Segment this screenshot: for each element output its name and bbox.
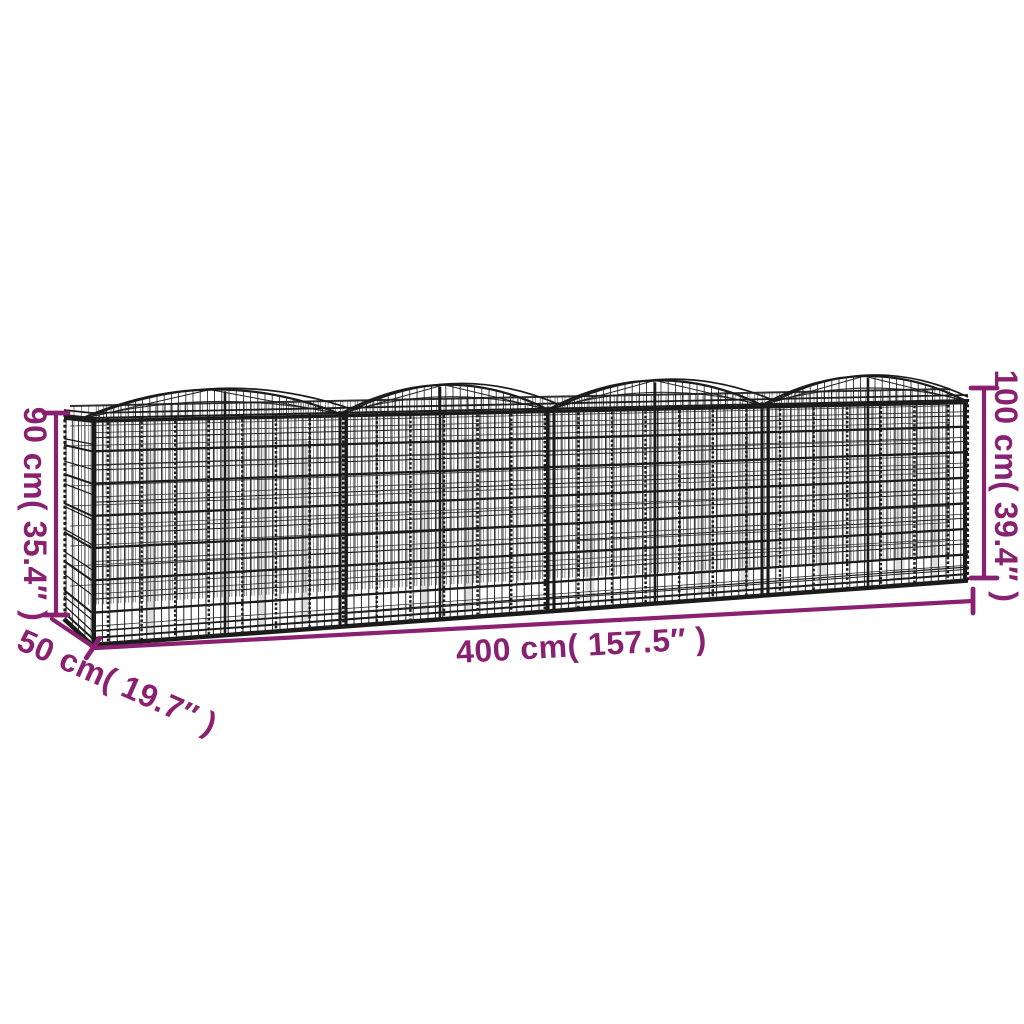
diagram-canvas: 90 cm( 35.4″ ) 100 cm( 39.4″ ) 400 cm( 1… xyxy=(0,0,1024,1024)
dimension-label-height-right: 100 cm( 39.4″ ) xyxy=(988,370,1024,603)
front-thin-horizontals2 xyxy=(92,412,968,627)
dimension-label-height-left: 90 cm( 35.4″ ) xyxy=(17,407,53,621)
left-end-mesh xyxy=(64,414,92,645)
gabion-basket-illustration xyxy=(64,375,968,647)
left-heavy-horizontals xyxy=(64,445,92,613)
dimension-diagram: 90 cm( 35.4″ ) 100 cm( 39.4″ ) 400 cm( 1… xyxy=(0,0,1024,1024)
